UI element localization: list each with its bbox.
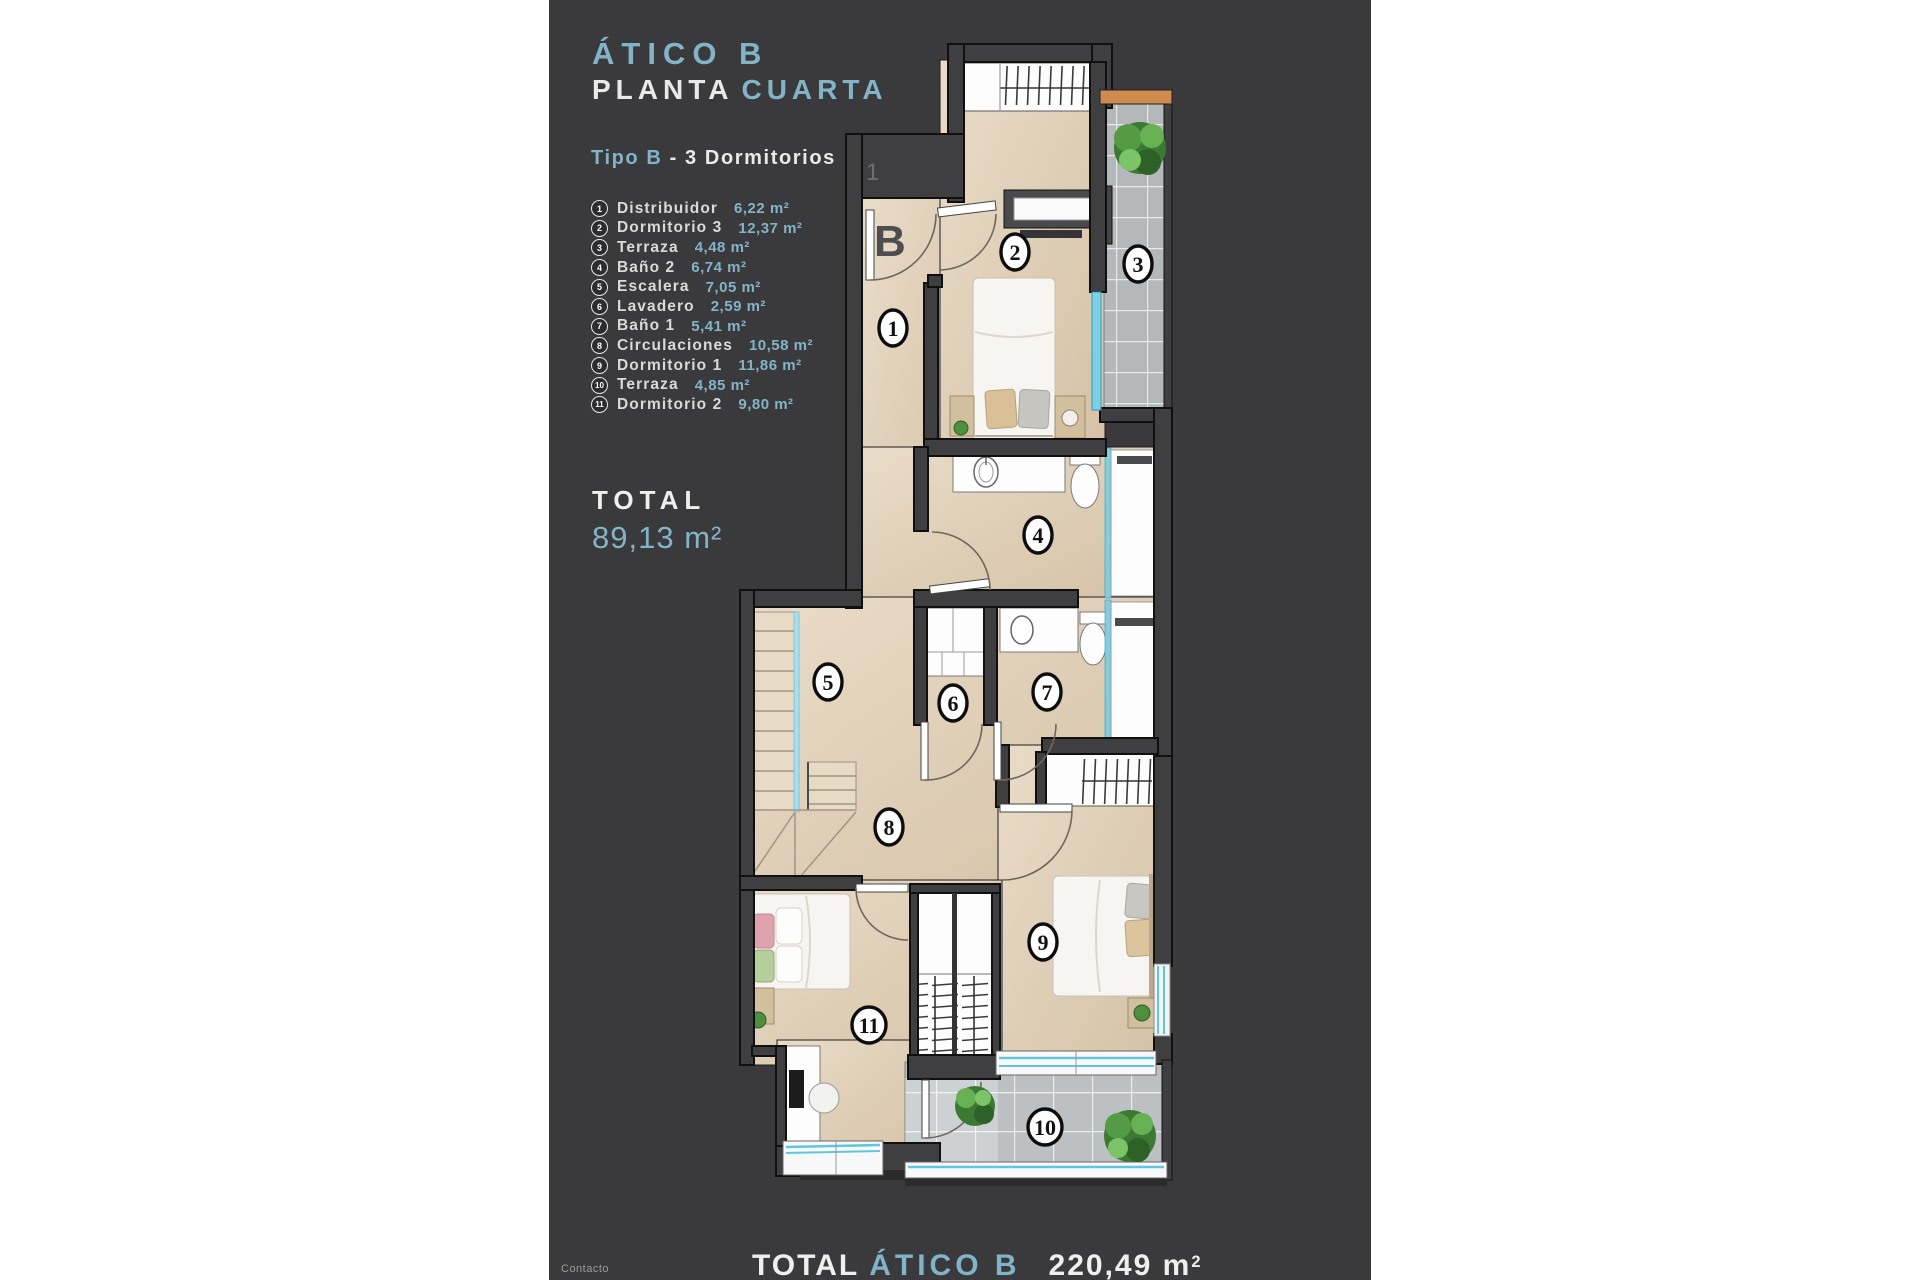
vanity-bano-2 [953,452,1065,492]
legend-room-label: Dormitorio 1 [617,357,722,375]
legend-number-badge: 2 [591,220,608,237]
legend-room-label: Dormitorio 2 [617,396,722,414]
room-legend: 1Distribuidor6,22 m²2Dormitorio 312,37 m… [591,199,813,415]
room-number-badge: 6 [939,685,967,721]
floor-subtitle-white: PLANTA [592,74,733,105]
chair-icon [809,1083,839,1113]
toilet-icon [1071,464,1099,508]
floor-subtitle-accent: CUARTA [741,74,887,105]
shower-bano-2 [1111,450,1156,596]
lamp-icon [1062,410,1078,426]
toilet-tank [1080,612,1106,624]
legend-room-label: Circulaciones [617,337,733,355]
door-leaf [922,1080,929,1138]
pillow [1125,919,1153,957]
legend-room-label: Baño 2 [617,259,675,277]
shower-glass [1105,600,1111,746]
door-leaf [856,884,908,892]
room-number-badge: 3 [1124,246,1152,282]
pillow [985,389,1018,429]
footer-total-value: 220,49 m [1049,1249,1192,1280]
room-number-badge: 9 [1029,924,1057,960]
faint-unit-mark: 1 [866,159,879,186]
legend-room-label: Escalera [617,278,690,296]
legend-room-area: 6,74 m² [691,259,746,276]
svg-text:9: 9 [1038,930,1049,955]
legend-room-area: 7,05 m² [706,279,761,296]
type-heading: Tipo B - 3 Dormitorios [591,147,836,170]
svg-text:8: 8 [884,815,895,840]
legend-room-area: 6,22 m² [734,200,789,217]
pillow-pink [754,914,774,948]
legend-room-label: Baño 1 [617,317,675,335]
pillow [1018,389,1050,429]
room-number-badge: 8 [875,809,903,845]
door-leaf [921,722,928,780]
legend-room-area: 10,58 m² [749,337,813,354]
legend-room-area: 9,80 m² [738,396,793,413]
svg-text:10: 10 [1034,1115,1056,1140]
window-sill-terrace-10 [905,1162,1167,1178]
legend-number-badge: 4 [591,259,608,276]
legend-item: 11Dormitorio 29,80 m² [591,395,813,415]
room-number-badge: 1 [879,310,907,346]
legend-room-label: Dormitorio 3 [617,219,722,237]
legend-room-label: Distribuidor [617,200,718,218]
total-value: 89,13 m² [592,520,722,556]
legend-item: 9Dormitorio 111,86 m² [591,356,813,376]
legend-number-badge: 3 [591,239,608,256]
pillow [776,946,802,982]
room-number-badge: 10 [1028,1109,1062,1145]
svg-text:1: 1 [888,316,899,341]
legend-number-badge: 6 [591,298,608,315]
plant-terrace-10-right [1104,1110,1156,1162]
room-number-badge: 11 [852,1007,886,1043]
legend-item: 7Baño 15,41 m² [591,317,813,337]
footer-total: TOTALÁTICO B220,49 m2 [752,1249,1203,1280]
legend-number-badge: 10 [591,377,608,394]
legend-room-label: Terraza [617,239,679,257]
legend-item: 2Dormitorio 312,37 m² [591,219,813,239]
footer-total-name: ÁTICO B [869,1249,1020,1280]
legend-room-area: 4,85 m² [695,377,750,394]
svg-text:11: 11 [859,1013,880,1038]
legend-room-area: 2,59 m² [711,298,766,315]
room-number-badge: 2 [1001,234,1029,270]
legend-number-badge: 8 [591,337,608,354]
legend-room-area: 12,37 m² [738,220,802,237]
type-heading-accent: Tipo B [591,147,662,169]
type-heading-rest: - 3 Dormitorios [670,147,836,169]
svg-text:3: 3 [1133,252,1144,277]
legend-number-badge: 11 [591,396,608,413]
legend-item: 1Distribuidor6,22 m² [591,199,813,219]
legend-room-label: Terraza [617,376,679,394]
entrance-letter-label: B [874,217,906,266]
legend-item: 8Circulaciones10,58 m² [591,336,813,356]
legend-item: 10Terraza4,85 m² [591,375,813,395]
toilet-icon [1080,623,1106,665]
room-number-badge: 4 [1024,517,1052,553]
legend-item: 6Lavadero2,59 m² [591,297,813,317]
stair-edge-strip [794,612,799,812]
window-glass [1092,292,1101,410]
page: 1 B 1234567891011 ÁTICO B PLANTACUARTA T… [0,0,1920,1280]
floor-plan: 1 B 1234567891011 [0,0,1920,1280]
door-leaf [1000,804,1072,812]
legend-item: 3Terraza4,48 m² [591,238,813,258]
svg-text:6: 6 [948,691,959,716]
legend-item: 5Escalera7,05 m² [591,277,813,297]
basin-icon [1011,616,1033,644]
footer-total-sup: 2 [1191,1253,1202,1271]
plant-terrace-10 [955,1086,995,1126]
room-number-badge: 7 [1033,674,1061,710]
towel-bar [1115,618,1153,626]
legend-number-badge: 9 [591,357,608,374]
legend-room-area: 11,86 m² [738,357,801,374]
plant-icon [1134,1005,1150,1021]
svg-text:2: 2 [1010,240,1021,265]
plant-icon [954,421,968,435]
legend-number-badge: 7 [591,318,608,335]
room-number-badge: 5 [814,664,842,700]
laptop-icon [789,1070,804,1108]
total-label: TOTAL [592,485,706,516]
legend-room-area: 5,41 m² [691,318,746,335]
footer-total-label: TOTAL [752,1249,859,1280]
towel-bar [1117,456,1152,464]
legend-room-label: Lavadero [617,298,695,316]
door-leaf-entrance [866,210,874,280]
floor-subtitle: PLANTACUARTA [592,74,888,106]
pillow-green [754,950,774,982]
closet-rail-icon [1082,756,1152,804]
page-title: ÁTICO B [592,36,768,72]
legend-number-badge: 5 [591,279,608,296]
pillow [776,908,802,944]
door-leaf [994,722,1001,780]
svg-text:4: 4 [1033,523,1044,548]
contact-label: Contacto [561,1263,609,1275]
legend-room-area: 4,48 m² [695,239,750,256]
legend-number-badge: 1 [591,200,608,217]
terrace-ledge-orange [1100,90,1172,104]
plant-terrace-3 [1114,122,1166,175]
legend-item: 4Baño 26,74 m² [591,258,813,278]
window-dormitorio-1 [1154,964,1170,1036]
shower-glass [1105,448,1111,598]
svg-text:5: 5 [823,670,834,695]
svg-text:7: 7 [1042,680,1053,705]
